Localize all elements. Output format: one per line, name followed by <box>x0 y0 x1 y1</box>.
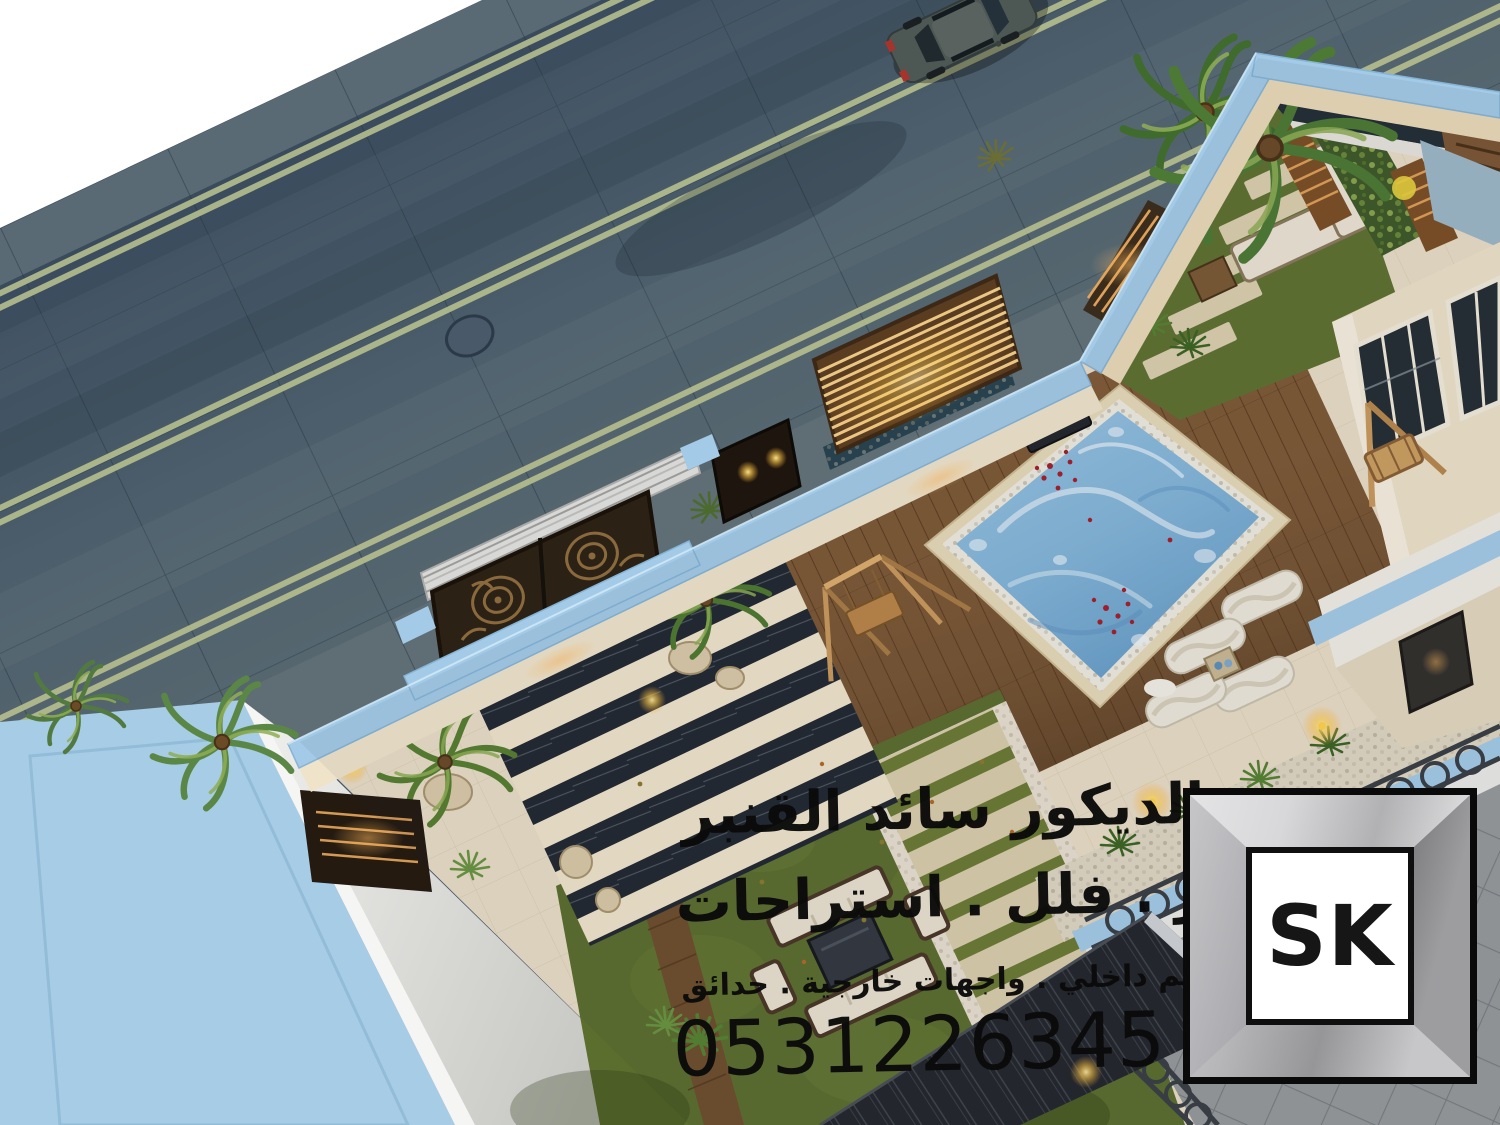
sk-logo-frame: SK <box>1190 795 1470 1077</box>
sk-logo-inner: SK <box>1246 847 1414 1025</box>
aerial-villa-render: مصمم الديكور سائد القنبر قصور . فلل . اس… <box>0 0 1500 1125</box>
sk-logo-text: SK <box>1266 887 1394 985</box>
sk-logo: SK <box>1183 788 1477 1084</box>
